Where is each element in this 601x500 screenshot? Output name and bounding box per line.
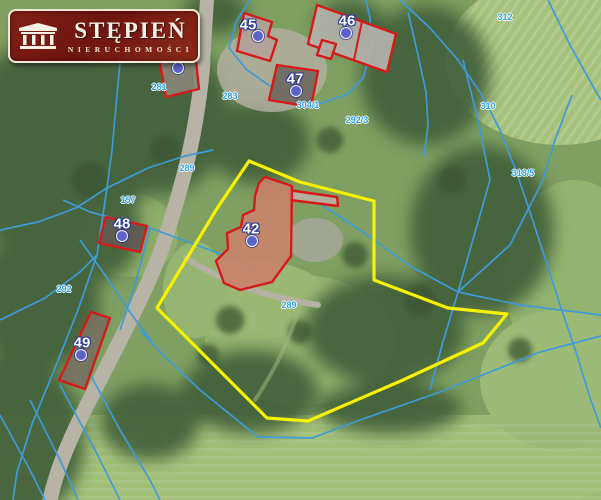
logo-subtitle: NIERUCHOMOŚCI <box>68 46 193 54</box>
marker-dot <box>172 62 184 74</box>
marker-dot <box>116 230 128 242</box>
marker-dot <box>290 85 302 97</box>
logo-title: STĘPIEŃ <box>74 19 186 42</box>
classical-building-icon <box>15 21 61 51</box>
building-outline-46-annex <box>317 40 336 59</box>
marker-dot <box>340 27 352 39</box>
marker-dot <box>246 235 258 247</box>
road <box>203 0 207 63</box>
marker-dot <box>252 30 264 42</box>
agency-logo: STĘPIEŃ NIERUCHOMOŚCI <box>8 9 200 63</box>
marker-dot <box>75 349 87 361</box>
yard <box>287 218 343 262</box>
aerial-map-viewport: 281283304/1292/3310318/5289157292289312 … <box>0 0 601 500</box>
